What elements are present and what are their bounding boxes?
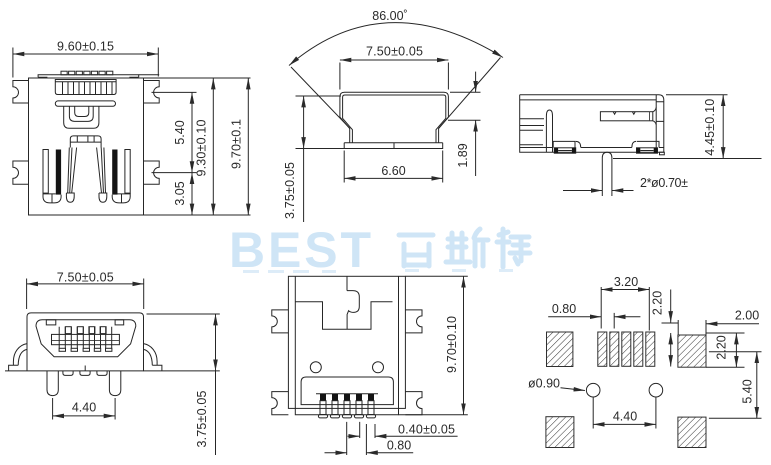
svg-text:2*ø0.70±: 2*ø0.70± bbox=[640, 176, 688, 190]
svg-text:7.50±0.05: 7.50±0.05 bbox=[57, 270, 114, 284]
svg-text:0.40±0.05: 0.40±0.05 bbox=[398, 422, 455, 436]
svg-text:3.05: 3.05 bbox=[173, 181, 187, 205]
svg-text:0.80: 0.80 bbox=[387, 438, 411, 452]
svg-text:5.40: 5.40 bbox=[173, 120, 187, 144]
svg-text:ø0.90: ø0.90 bbox=[528, 377, 560, 391]
svg-text:0.80: 0.80 bbox=[552, 302, 576, 316]
svg-text:5.40: 5.40 bbox=[741, 379, 755, 403]
svg-text:9.30±0.10: 9.30±0.10 bbox=[195, 119, 209, 176]
svg-text:2.20: 2.20 bbox=[651, 291, 665, 315]
svg-text:4.40: 4.40 bbox=[613, 409, 637, 423]
svg-text:BEST: BEST bbox=[229, 222, 372, 278]
svg-text:4.45±0.10: 4.45±0.10 bbox=[703, 99, 717, 156]
svg-text:9.60±0.15: 9.60±0.15 bbox=[57, 40, 114, 54]
svg-text:7.50±0.05: 7.50±0.05 bbox=[366, 44, 423, 58]
svg-text:2.20: 2.20 bbox=[715, 335, 729, 359]
svg-text:9.70±0.10: 9.70±0.10 bbox=[445, 316, 459, 373]
svg-text:3.75±0.05: 3.75±0.05 bbox=[283, 162, 297, 219]
svg-text:9.70±0.1: 9.70±0.1 bbox=[230, 119, 244, 169]
svg-text:86.00˚: 86.00˚ bbox=[372, 9, 407, 23]
svg-text:4.40: 4.40 bbox=[72, 400, 96, 414]
svg-text:1.89: 1.89 bbox=[456, 143, 470, 167]
svg-text:6.60: 6.60 bbox=[381, 164, 405, 178]
svg-text:3.75±0.05: 3.75±0.05 bbox=[195, 390, 209, 447]
svg-text:3.20: 3.20 bbox=[614, 275, 638, 289]
svg-text:2.00: 2.00 bbox=[735, 309, 759, 323]
